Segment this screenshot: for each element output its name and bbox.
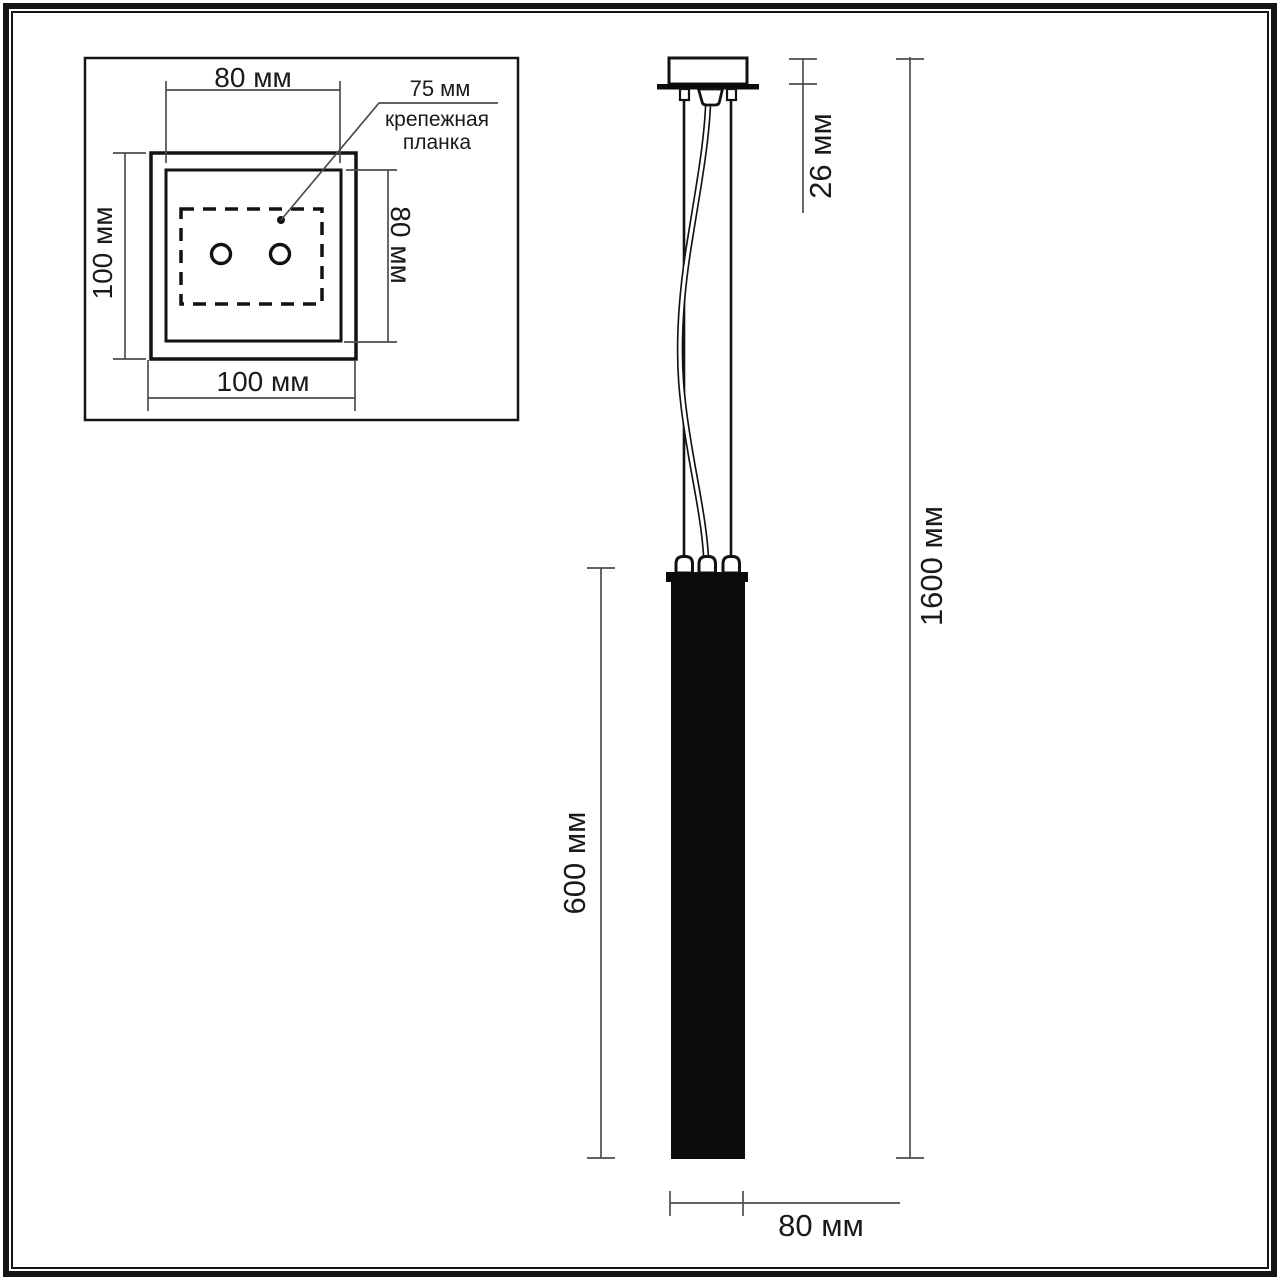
bracket-name-line1: крепежная — [347, 108, 527, 131]
bracket-name-line2: планка — [347, 131, 527, 154]
inset-dim-right-label: 80 мм — [384, 175, 414, 315]
shade-top-ring — [666, 572, 748, 582]
bracket-dim-label: 75 мм — [380, 78, 500, 102]
main-dimension-lines — [587, 57, 924, 1216]
mounting-hole-right — [271, 245, 290, 264]
inset-dim-left-label: 100 мм — [89, 168, 119, 338]
drawing-svg — [0, 0, 1280, 1280]
total-height-label: 1600 мм — [916, 456, 948, 676]
shade-connector-right — [723, 557, 740, 574]
inset-dim-bottom-label: 100 мм — [178, 368, 348, 398]
ceiling-box — [669, 58, 747, 84]
mounting-hole-left — [212, 245, 231, 264]
wire-grip-right — [727, 89, 736, 100]
shade-height-label: 600 мм — [559, 763, 591, 963]
wire-grip-left — [680, 89, 689, 100]
shade-width-label: 80 мм — [736, 1210, 906, 1242]
pendant-side-view — [587, 57, 924, 1216]
shade-connector-left — [676, 557, 693, 574]
bracket-name-label: крепежная планка — [347, 108, 527, 154]
technical-drawing-page: 80 мм 100 мм 80 мм 100 мм 75 мм крепежна… — [0, 0, 1280, 1280]
shade-connector-center — [699, 557, 716, 574]
canopy-height-label: 26 мм — [805, 76, 837, 236]
shade-body — [671, 581, 745, 1159]
cord-grip-center — [699, 89, 723, 105]
inset-dim-top-label: 80 мм — [183, 64, 323, 94]
